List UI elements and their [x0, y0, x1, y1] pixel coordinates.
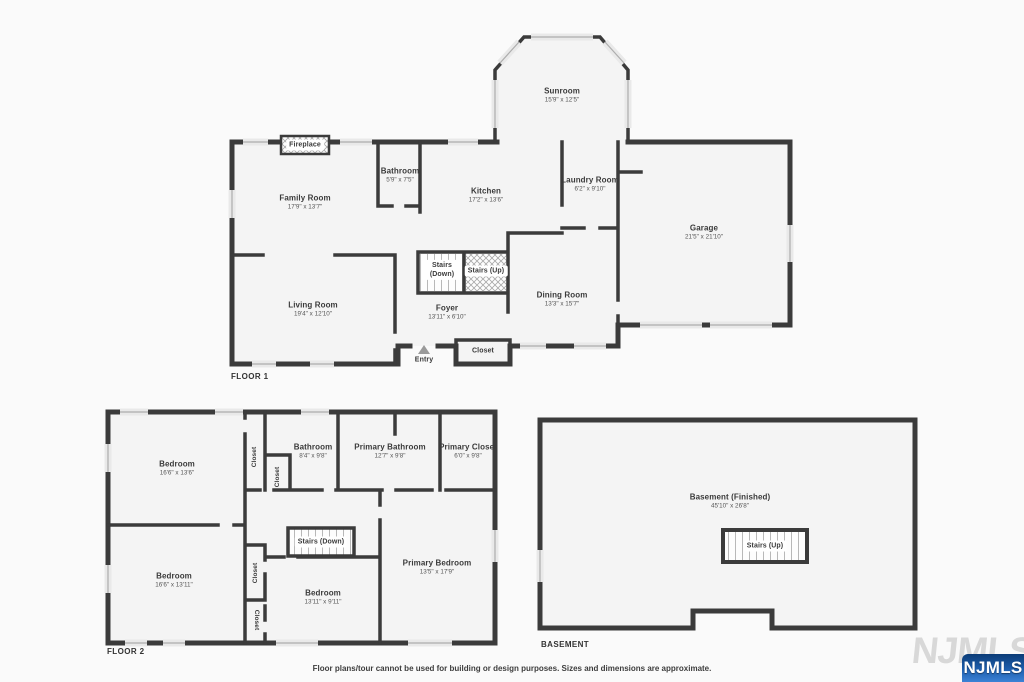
- room-label-stairs-up-f1: Stairs (Up): [465, 265, 508, 276]
- floor-plan-drawing: [0, 0, 1024, 682]
- room-label-primary-bedroom: Primary Bedroom 13'5" x 17'9": [403, 559, 472, 578]
- room-label-stairs-down-f1: Stairs (Down): [422, 260, 462, 280]
- room-label-closet-top-a: Closet: [251, 447, 259, 467]
- room-label-stairs-up-basement: Stairs (Up): [744, 540, 787, 551]
- room-label-closet-f1: Closet: [472, 346, 494, 355]
- room-label-bathroom-f1: Bathroom 5'9" x 7'5": [381, 167, 420, 186]
- room-label-garage: Garage 21'5" x 21'10": [685, 224, 723, 243]
- room-label-dining-room: Dining Room 13'3" x 15'7": [537, 291, 588, 310]
- room-label-stairs-down-f2: Stairs (Down): [295, 536, 347, 547]
- room-label-fireplace: Fireplace: [286, 139, 324, 150]
- room-label-living-room: Living Room 19'4" x 12'10": [288, 301, 338, 320]
- room-label-closet-top-b: Closet: [274, 467, 282, 487]
- entry-arrow-icon: [418, 345, 430, 354]
- floor-plan-canvas: Sunroom 15'9" x 12'5" Fireplace Family R…: [0, 0, 1024, 682]
- njmls-logo-badge: NJMLS: [962, 654, 1024, 682]
- room-label-entry: Entry: [415, 355, 433, 364]
- basement-fill: [540, 420, 915, 628]
- room-label-sunroom: Sunroom 15'9" x 12'5": [544, 87, 580, 106]
- floor2-tag: FLOOR 2: [107, 647, 144, 656]
- room-label-foyer: Foyer 13'11" x 6'10": [428, 304, 466, 323]
- disclaimer-text: Floor plans/tour cannot be used for buil…: [0, 664, 1024, 673]
- room-label-closet-mid: Closet: [252, 563, 260, 583]
- basement-tag: BASEMENT: [541, 640, 589, 649]
- room-label-laundry-room: Laundry Room 6'2" x 9'10": [561, 176, 619, 195]
- basement-plan: [540, 420, 915, 628]
- room-label-primary-bathroom: Primary Bathroom 12'7" x 9'8": [354, 443, 425, 462]
- room-label-bedroom-top: Bedroom 16'6" x 13'6": [159, 460, 195, 479]
- room-label-bedroom-left: Bedroom 16'6" x 13'11": [155, 572, 193, 591]
- room-label-family-room: Family Room 17'9" x 13'7": [279, 194, 330, 213]
- room-label-closet-bottom: Closet: [252, 610, 260, 630]
- room-label-primary-closet: Primary Closet 6'0" x 9'8": [439, 443, 497, 462]
- room-label-kitchen: Kitchen 17'2" x 13'6": [469, 187, 504, 206]
- room-label-bathroom-f2: Bathroom 8'4" x 9'8": [294, 443, 333, 462]
- room-label-bedroom-center: Bedroom 13'11" x 9'11": [304, 589, 341, 608]
- floor1-tag: FLOOR 1: [231, 372, 268, 381]
- room-label-basement: Basement (Finished) 45'10" x 26'8": [690, 493, 771, 512]
